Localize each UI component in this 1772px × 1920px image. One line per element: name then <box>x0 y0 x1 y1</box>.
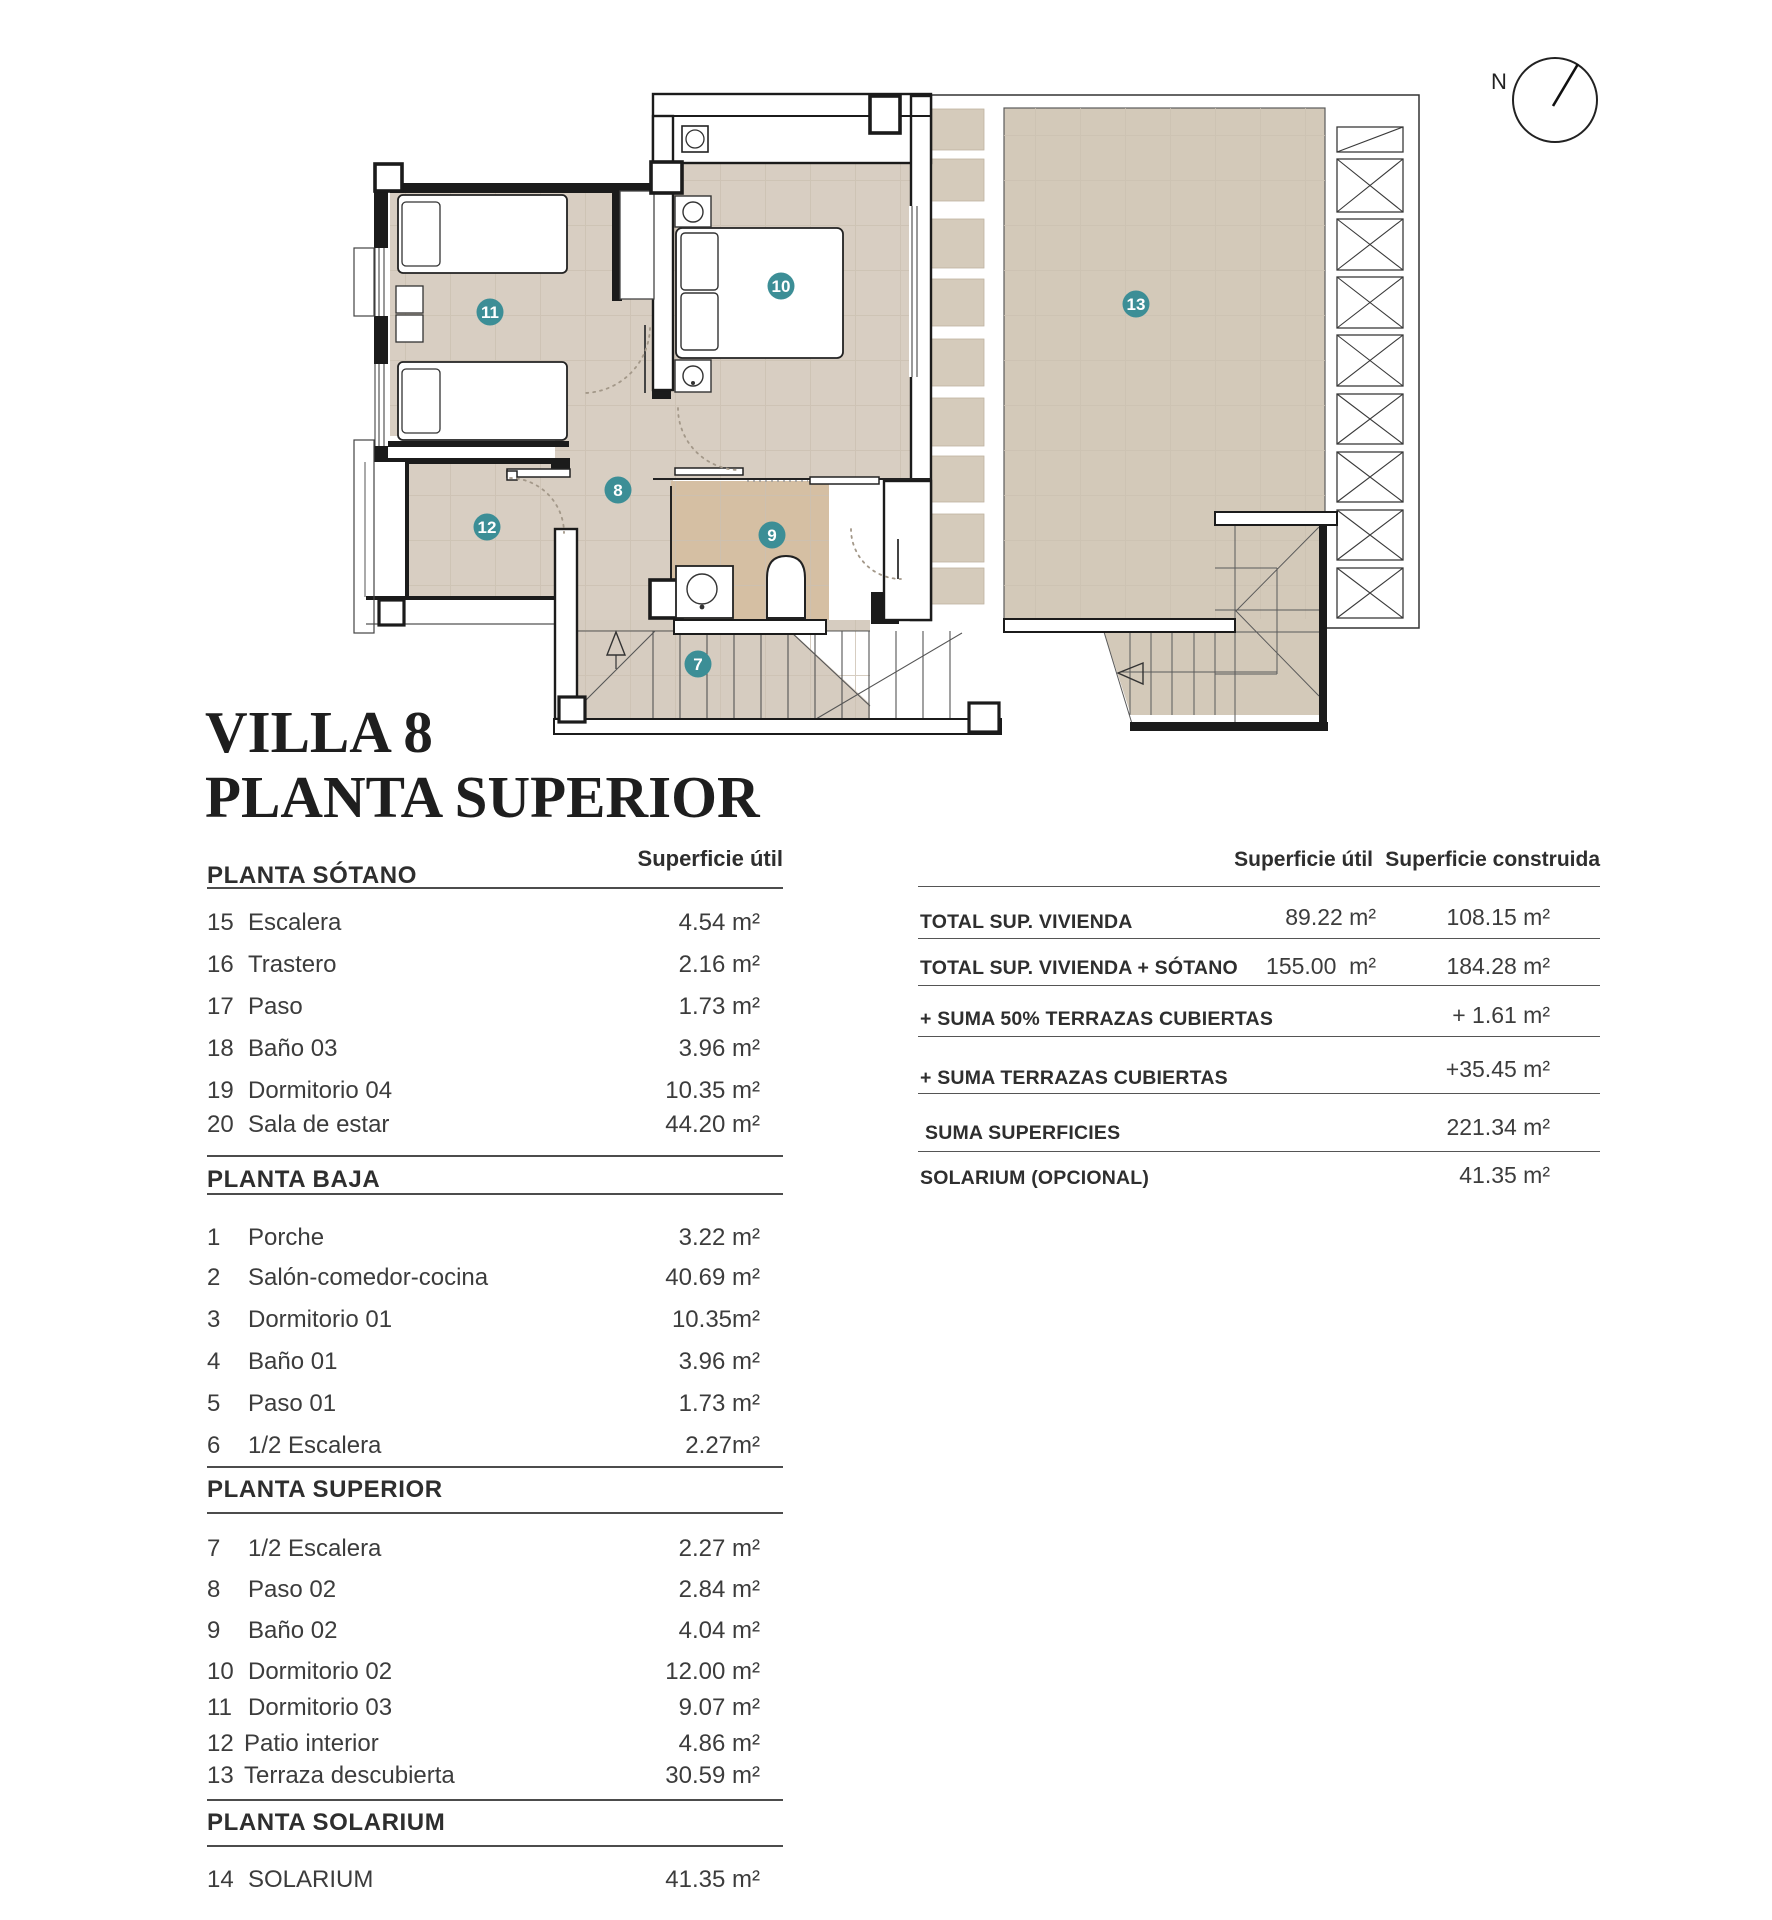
svg-text:12: 12 <box>478 518 497 537</box>
svg-text:N: N <box>1491 69 1507 94</box>
svg-text:7: 7 <box>693 655 702 674</box>
svg-text:9: 9 <box>767 526 776 545</box>
svg-text:13: 13 <box>1127 295 1146 314</box>
svg-text:8: 8 <box>613 481 622 500</box>
svg-text:11: 11 <box>481 303 499 322</box>
svg-text:10: 10 <box>772 277 791 296</box>
